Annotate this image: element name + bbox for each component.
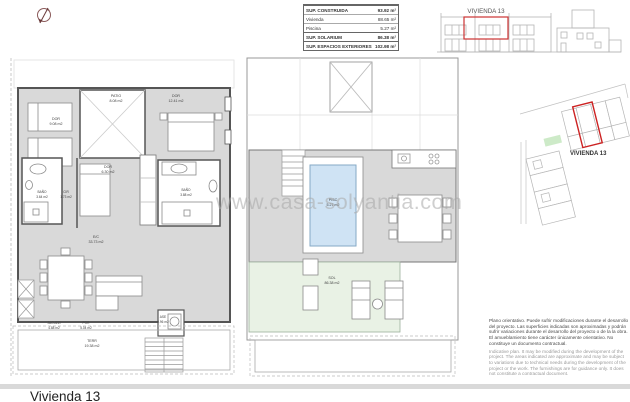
room-label: DOR	[52, 117, 60, 121]
area-label: SUP. ESPACIOS EXTERIORES	[306, 44, 372, 49]
area-label: SUP. SOLARIUM	[306, 35, 342, 40]
room-label: POR	[83, 321, 91, 325]
areas-table: SUP. CONSTRUIDA93.92 m² Vivienda88.65 m²…	[303, 4, 399, 51]
stairs	[145, 338, 183, 372]
terrace-outline	[18, 330, 230, 370]
room-label: E/C	[93, 235, 99, 239]
page-title: Vivienda 13	[30, 389, 100, 402]
lower-unit-block	[526, 151, 575, 225]
room-area: 8.08 m2	[110, 99, 123, 103]
elevation-drawing: VIVIENDA 13	[435, 2, 630, 58]
room-area: 9.08 m2	[50, 122, 63, 126]
terrace-dashed	[13, 326, 234, 374]
room-area: 1.73 m2	[60, 195, 72, 199]
garden-patch	[544, 135, 562, 147]
room-area: 3.64 m2	[36, 195, 48, 199]
table-row: Piscina5.27 m²	[304, 23, 398, 32]
solarium-floor-plan: PISC 5.27 m2 SOL 86.38 m2	[243, 52, 463, 382]
kitchen-counter	[392, 150, 456, 168]
ground-floor-plan: DOR 9.08 m2 PATIO 8.08 m2 DOR 12.41 m2 D…	[8, 52, 238, 382]
table-row: SUP. ESPACIOS EXTERIORES102.98 m²	[304, 41, 398, 50]
room-area: 19.38 m2	[85, 344, 100, 348]
area-value: 93.92 m²	[378, 8, 396, 13]
room-area: 3.88 m2	[180, 193, 192, 197]
room-area: 5.04 m2	[80, 326, 92, 330]
area-value: 102.98 m²	[375, 44, 396, 49]
area-value: 86.38 m²	[378, 35, 396, 40]
area-label: Piscina	[306, 26, 321, 31]
disclaimer-spanish: Plano orientativo. Puede sufrir modifica…	[489, 318, 629, 347]
site-plan: VIVIENDA 13	[512, 56, 630, 228]
room-label: SOL	[328, 276, 335, 280]
dining-set	[40, 248, 92, 308]
room-area: 0.96 m2	[157, 320, 169, 324]
room-label: ASE	[160, 315, 166, 319]
area-label: Vivienda	[306, 17, 324, 22]
table-row: Vivienda88.65 m²	[304, 14, 398, 23]
room-label: BAÑO	[181, 187, 191, 192]
upper-unit-block	[538, 95, 630, 156]
disclaimer-english: Indicative plan. It may be modified duri…	[489, 349, 629, 378]
terrace-dashed	[250, 336, 455, 376]
side-building-elevation	[557, 10, 621, 52]
room-area: 6.30 m2	[102, 170, 115, 174]
room-area: 4.88 m2	[48, 326, 60, 330]
rowhouse-elevation	[437, 13, 621, 52]
area-label: SUP. CONSTRUIDA	[306, 8, 348, 13]
room-label: TERR	[87, 339, 97, 343]
elevation-unit-label: VIVIENDA 13	[467, 8, 505, 15]
room-label: PATIO	[111, 94, 121, 98]
room-label: JACUZZI	[47, 321, 60, 325]
solarium-area	[249, 262, 400, 332]
north-arrow-icon	[28, 2, 58, 32]
room-label: BAÑO	[37, 189, 47, 194]
room-label: CIR	[63, 190, 69, 194]
room-label: DOR	[104, 165, 112, 169]
site-plan-unit-label: VIVIENDA 13	[570, 151, 607, 157]
room-label: DOR	[172, 94, 180, 98]
table-row: SUP. CONSTRUIDA93.92 m²	[304, 5, 398, 14]
area-value: 5.27 m²	[380, 26, 396, 31]
stair-shaft	[330, 62, 372, 112]
terrace-outline	[255, 340, 451, 372]
room-area: 33.73 m2	[89, 240, 104, 244]
table-row: SUP. SOLARIUM86.38 m²	[304, 32, 398, 41]
area-value: 88.65 m²	[378, 17, 396, 22]
disclaimer-block: Plano orientativo. Puede sufrir modifica…	[489, 318, 629, 377]
watermark: www.casa-solyantia.com	[216, 190, 516, 215]
room-area: 12.41 m2	[169, 99, 184, 103]
room-area: 86.38 m2	[325, 281, 340, 285]
plan-sheet: SUP. CONSTRUIDA93.92 m² Vivienda88.65 m²…	[0, 0, 630, 402]
